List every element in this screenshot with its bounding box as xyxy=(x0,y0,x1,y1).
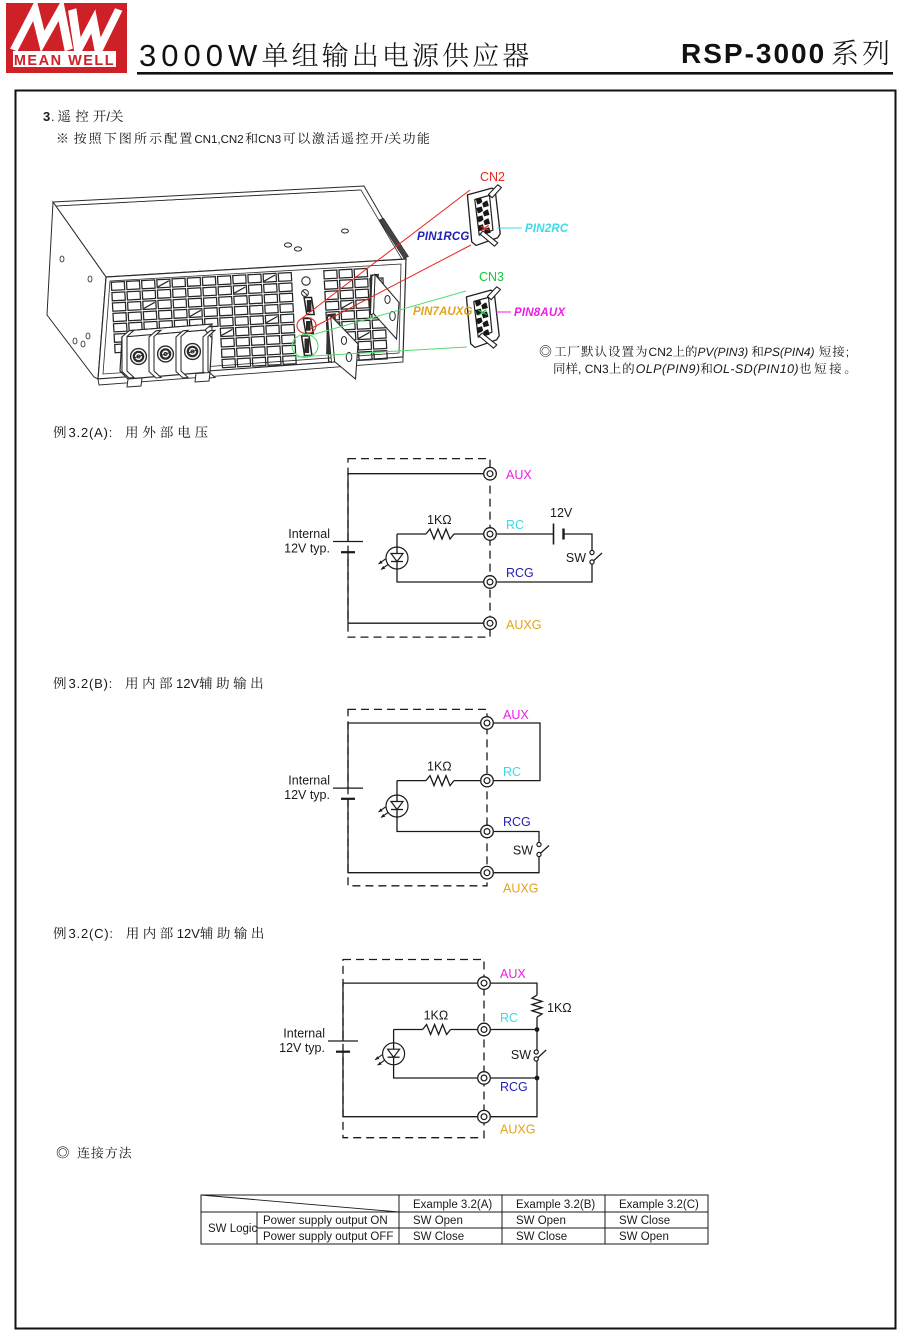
svg-text:12V typ.: 12V typ. xyxy=(279,1041,325,1055)
svg-text:Example 3.2(A): Example 3.2(A) xyxy=(413,1199,492,1211)
svg-text:Internal: Internal xyxy=(288,774,330,788)
svg-text:1KΩ: 1KΩ xyxy=(547,1001,572,1015)
svg-text:PIN8AUX: PIN8AUX xyxy=(514,307,566,319)
svg-text:SW Logic: SW Logic xyxy=(208,1223,257,1235)
svg-text:AUXG: AUXG xyxy=(506,618,541,632)
svg-text:1KΩ: 1KΩ xyxy=(427,760,452,774)
svg-text:12V: 12V xyxy=(550,506,573,520)
svg-text:SW Open: SW Open xyxy=(619,1231,669,1243)
svg-text:SW: SW xyxy=(513,844,533,858)
svg-text:RCG: RCG xyxy=(500,1080,528,1094)
svg-text:SW Open: SW Open xyxy=(413,1215,463,1227)
svg-text:12V typ.: 12V typ. xyxy=(284,788,330,802)
svg-text:Example 3.2(B): Example 3.2(B) xyxy=(516,1199,595,1211)
svg-text:PIN2RC: PIN2RC xyxy=(525,223,569,235)
svg-text:SW Open: SW Open xyxy=(516,1215,566,1227)
svg-text:Internal: Internal xyxy=(288,527,330,541)
svg-text:AUX: AUX xyxy=(503,708,529,722)
svg-text:RCG: RCG xyxy=(506,566,534,580)
svg-text:AUXG: AUXG xyxy=(503,882,538,896)
svg-text:Internal: Internal xyxy=(283,1027,325,1041)
svg-text:3: 3 xyxy=(43,109,50,124)
svg-text:RC: RC xyxy=(503,765,521,779)
svg-text:1KΩ: 1KΩ xyxy=(424,1009,449,1023)
svg-text:PIN7AUXG: PIN7AUXG xyxy=(413,306,473,318)
svg-text:.: . xyxy=(51,109,55,124)
svg-text:Example 3.2(C): Example 3.2(C) xyxy=(619,1199,699,1211)
svg-text:CN2: CN2 xyxy=(480,170,505,184)
svg-text:RC: RC xyxy=(500,1011,518,1025)
svg-text:1KΩ: 1KΩ xyxy=(427,513,452,527)
svg-text:SW: SW xyxy=(511,1048,531,1062)
svg-text:MEAN WELL: MEAN WELL xyxy=(14,53,115,69)
svg-text:Power supply output OFF: Power supply output OFF xyxy=(263,1231,393,1243)
svg-text:AUXG: AUXG xyxy=(500,1123,535,1137)
svg-text:SW: SW xyxy=(566,551,586,565)
svg-text:12V typ.: 12V typ. xyxy=(284,542,330,556)
svg-text:SW Close: SW Close xyxy=(619,1215,670,1227)
svg-text:RSP-3000: RSP-3000 xyxy=(681,38,826,69)
svg-text:CN3: CN3 xyxy=(479,270,504,284)
svg-text:SW Close: SW Close xyxy=(516,1231,567,1243)
svg-text:RCG: RCG xyxy=(503,815,531,829)
svg-text:Power supply output ON: Power supply output ON xyxy=(263,1215,388,1227)
svg-text:AUX: AUX xyxy=(506,468,532,482)
svg-text:3000W: 3000W xyxy=(139,38,262,73)
svg-text:RC: RC xyxy=(506,518,524,532)
svg-text:PIN1RCG: PIN1RCG xyxy=(417,231,470,243)
svg-text:AUX: AUX xyxy=(500,967,526,981)
svg-text:SW Close: SW Close xyxy=(413,1231,464,1243)
